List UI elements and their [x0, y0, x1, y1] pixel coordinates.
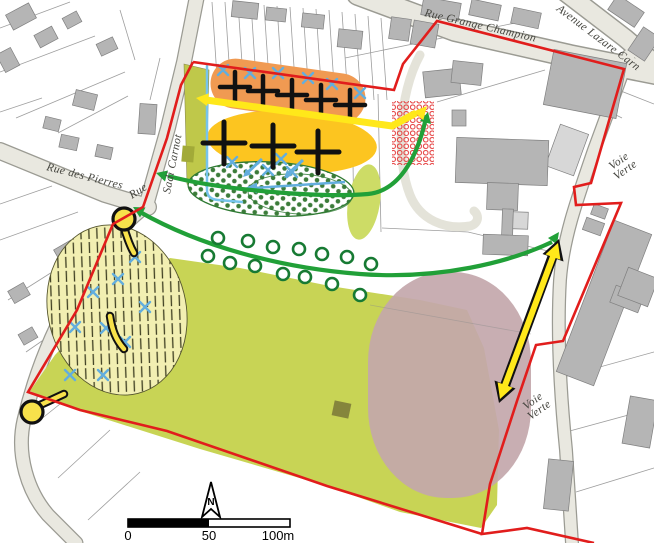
building [301, 13, 324, 29]
tree-circle [212, 232, 224, 244]
tree-circle [299, 271, 311, 283]
tree-circle [277, 268, 289, 280]
tree-circle [249, 260, 261, 272]
building [543, 459, 573, 511]
tree-circle [224, 257, 236, 269]
tree-circle [365, 258, 377, 270]
scale-label-end: 100m [262, 528, 295, 543]
north-arrow-label: N [207, 497, 214, 508]
tree-circle [326, 278, 338, 290]
building [513, 212, 529, 230]
tree-circle [341, 251, 353, 263]
building [337, 29, 363, 49]
building [138, 103, 157, 134]
scale-bar-black-half [128, 519, 209, 527]
map-canvas: Rue Grange Champion Avenue Lazare Carn R… [0, 0, 654, 543]
building-school-corridor [501, 209, 513, 238]
site-plan-map: Rue Grange Champion Avenue Lazare Carn R… [0, 0, 654, 543]
tree-circle [242, 235, 254, 247]
tree-circle [267, 241, 279, 253]
entrance-pin-south [21, 401, 43, 423]
olive-strip-building [181, 146, 194, 163]
building-school-wing [487, 182, 519, 210]
tree-circle [316, 248, 328, 260]
building-school-main [455, 137, 549, 185]
building [452, 110, 466, 126]
building [389, 17, 412, 42]
building [265, 7, 286, 22]
scale-label-mid: 50 [202, 528, 216, 543]
scale-label-start: 0 [124, 528, 131, 543]
plus-symbols-yellow-zone [203, 122, 339, 173]
building [231, 1, 259, 20]
tree-circle [354, 289, 366, 301]
tree-circle [293, 243, 305, 255]
building [451, 60, 483, 85]
tree-circle [202, 250, 214, 262]
